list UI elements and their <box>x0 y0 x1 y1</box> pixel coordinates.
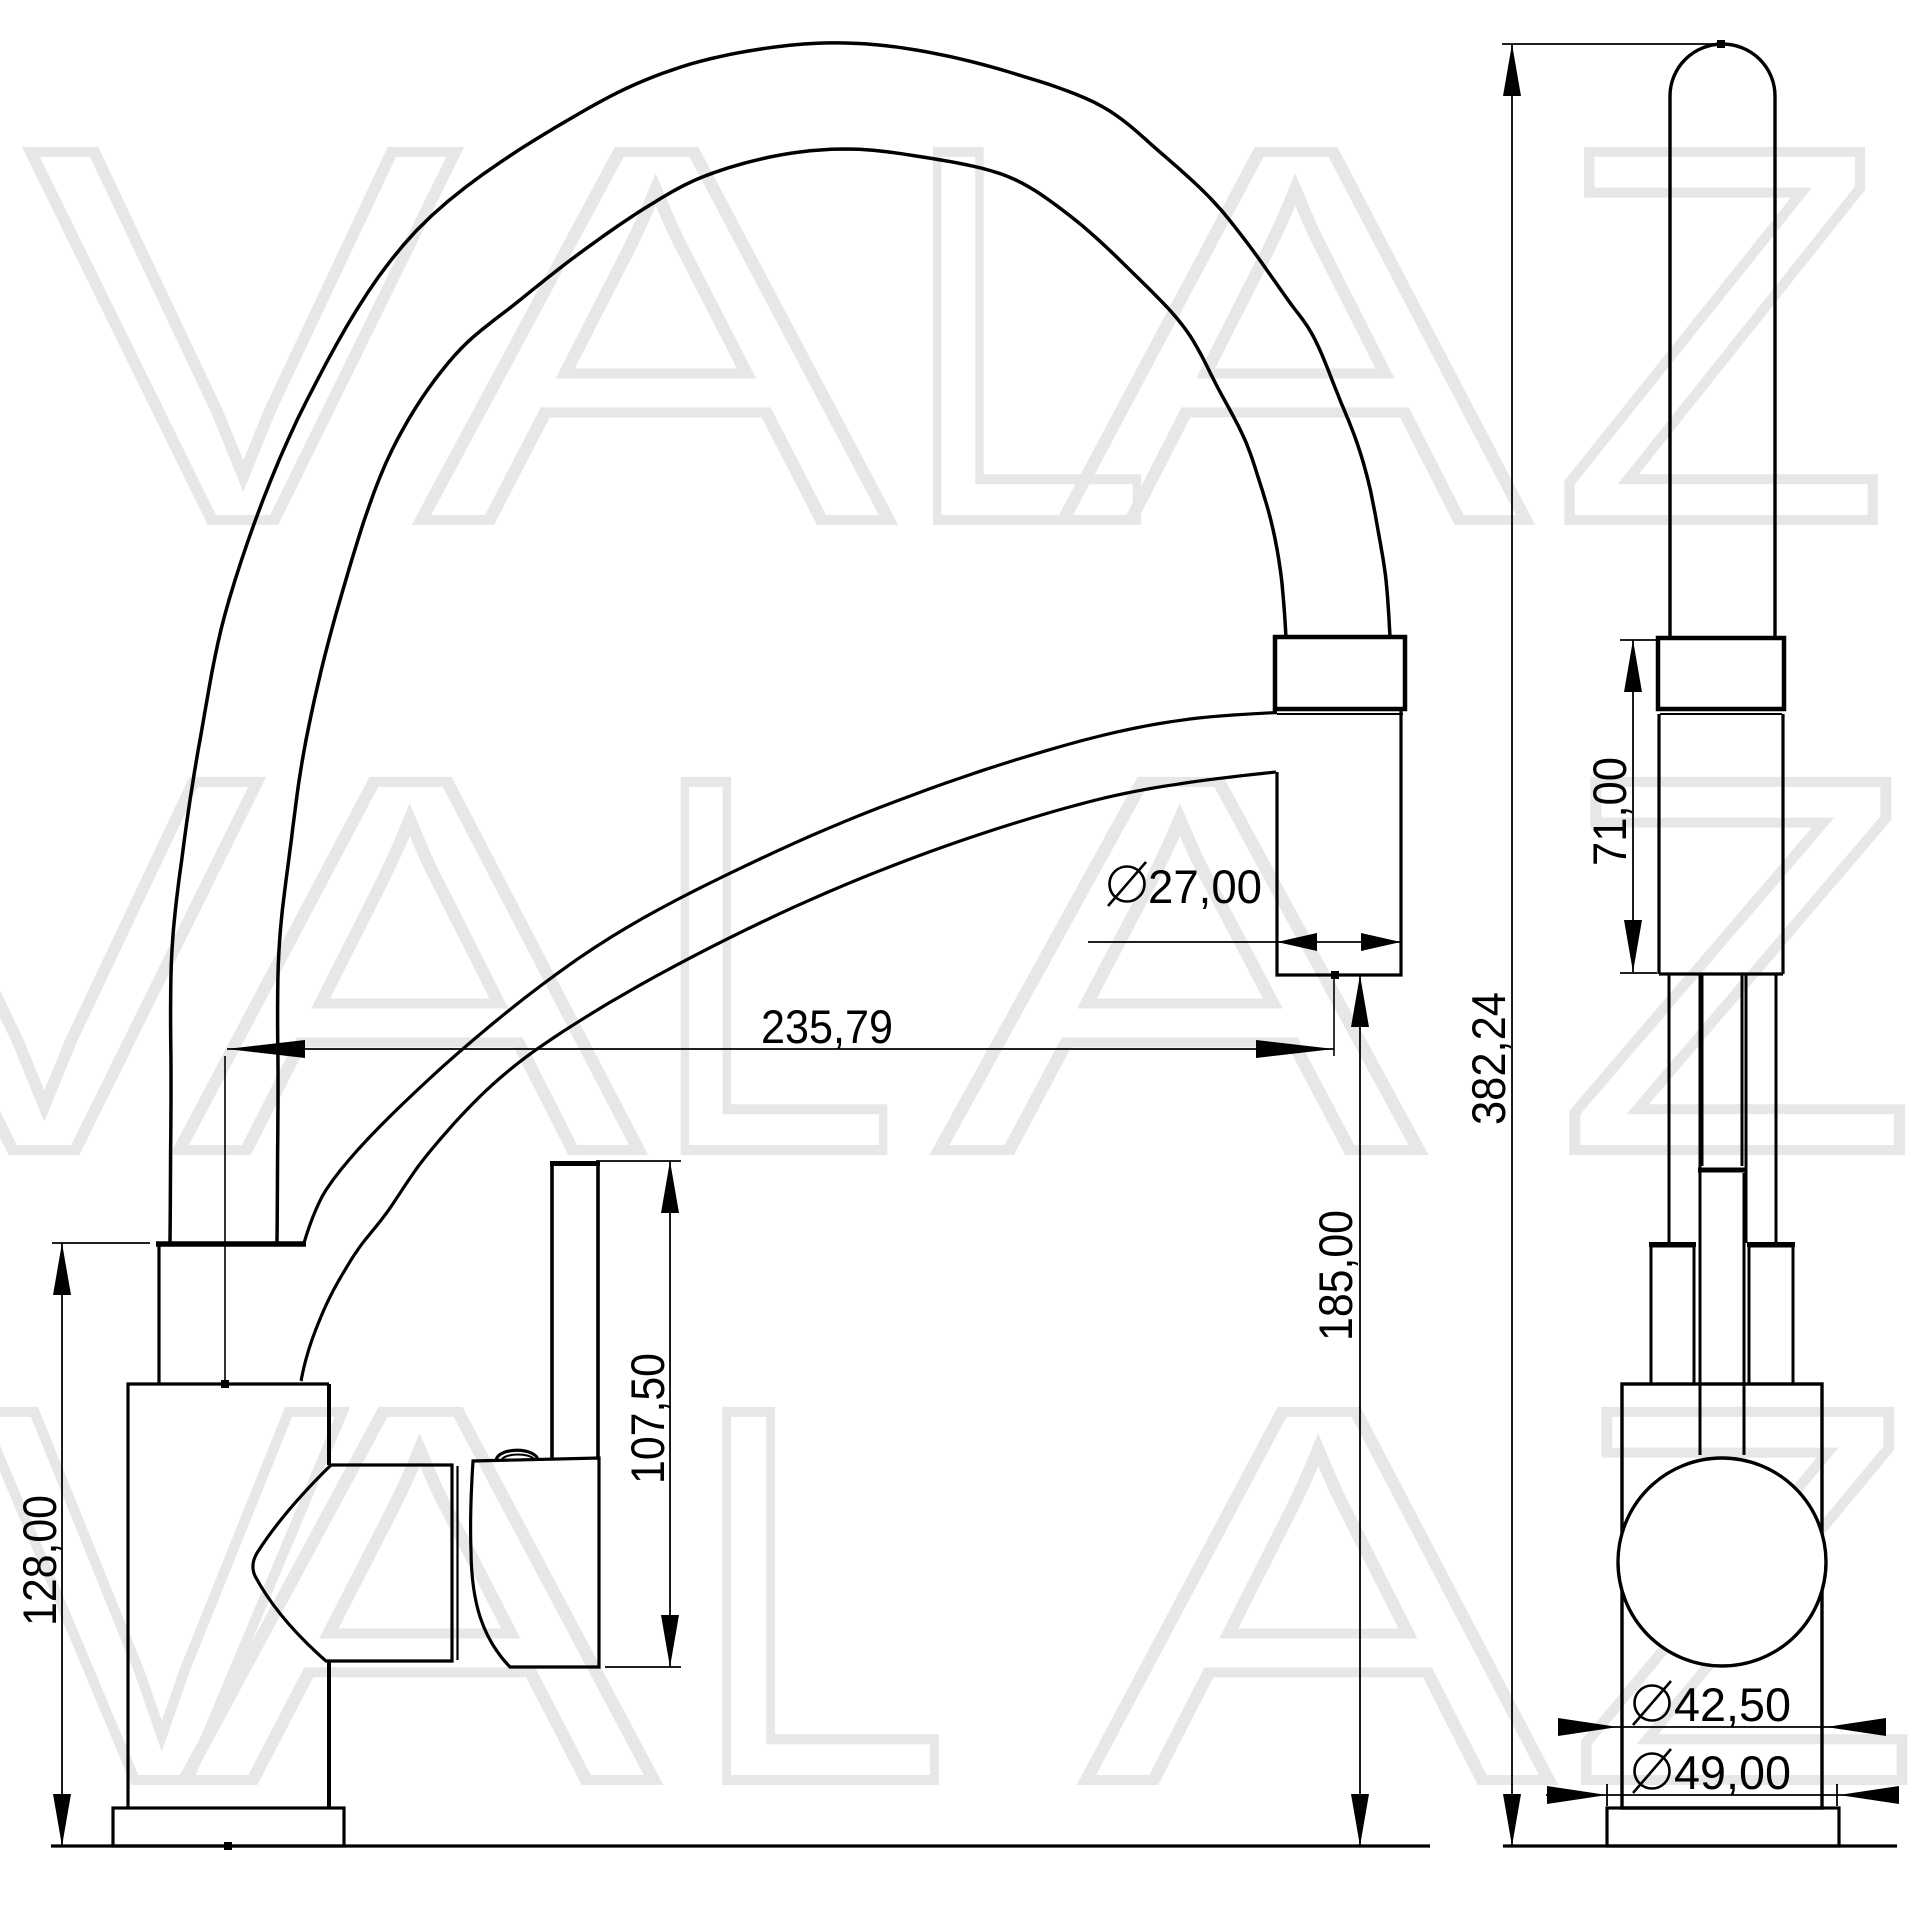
svg-text:V: V <box>28 37 461 634</box>
svg-text:A: A <box>938 667 1424 1264</box>
svg-text:A: A <box>420 37 893 634</box>
svg-text:71,00: 71,00 <box>1583 757 1636 866</box>
svg-text:235,79: 235,79 <box>761 1000 893 1053</box>
svg-text:107,50: 107,50 <box>621 1353 674 1484</box>
svg-text:A: A <box>183 1297 658 1894</box>
svg-text:382,24: 382,24 <box>1462 992 1515 1125</box>
svg-text:L: L <box>648 667 898 1264</box>
svg-text:42,50: 42,50 <box>1674 1678 1791 1731</box>
svg-text:Z: Z <box>1552 37 1890 634</box>
svg-text:A: A <box>1085 1297 1553 1894</box>
svg-text:Z: Z <box>1556 667 1918 1264</box>
svg-text:27,00: 27,00 <box>1148 860 1262 913</box>
svg-text:128,00: 128,00 <box>13 1495 66 1626</box>
svg-text:L: L <box>688 1297 950 1894</box>
svg-text:185,00: 185,00 <box>1309 1210 1362 1341</box>
svg-text:49,00: 49,00 <box>1674 1746 1791 1799</box>
